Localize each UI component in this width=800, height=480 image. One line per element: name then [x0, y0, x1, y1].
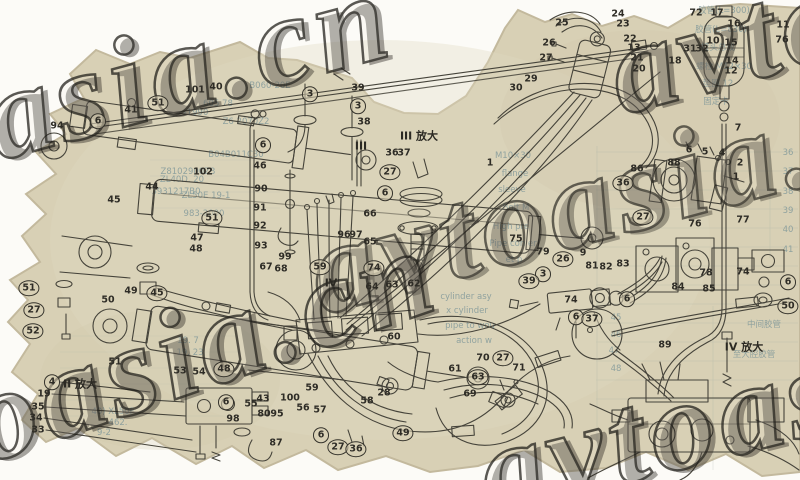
- suction-pipe: [658, 124, 726, 396]
- bottom-hoses: [308, 304, 570, 445]
- right-fittings: [752, 250, 784, 307]
- hook-bolt-parts: [278, 170, 298, 254]
- long-tube: [90, 40, 658, 134]
- hose-coil: [572, 309, 622, 359]
- steering-hoses-top: [550, 12, 602, 38]
- gear-pump-lower: [636, 238, 754, 292]
- steering-valve: [568, 28, 615, 99]
- pilot-valve-assembly: [44, 382, 272, 461]
- check-valve-cluster: [509, 258, 662, 350]
- view-iii-fitting: [398, 159, 442, 272]
- oil-reservoir: [704, 6, 744, 121]
- return-tube: [250, 111, 270, 320]
- control-valve-assembly: [588, 332, 799, 480]
- loop-hose: [494, 83, 658, 168]
- hose-bundle: [340, 72, 660, 336]
- scanned-parts-diagram: B04B011C30Z8102900Z3ZL40D. 203931217B0ZL…: [0, 0, 800, 480]
- diagram-lineart: [0, 0, 800, 480]
- bucket-cylinder: [136, 178, 585, 266]
- left-small-parts: [56, 263, 159, 339]
- hose-85: [612, 298, 789, 336]
- gear-pump-upper: [649, 142, 744, 211]
